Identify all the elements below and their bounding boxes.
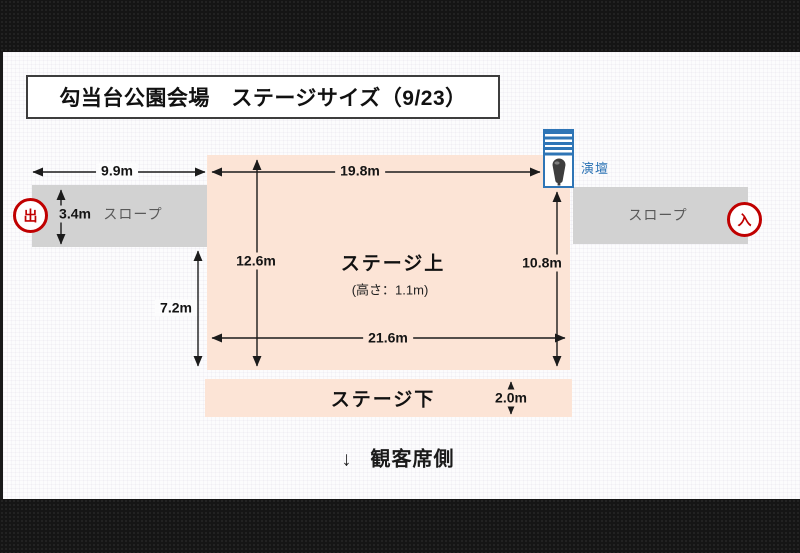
exit-badge: 出: [13, 198, 48, 233]
podium-top-stripes: [545, 131, 572, 156]
dim-label-lower-stage-depth: 2.0m: [490, 390, 532, 407]
slide: 勾当台公園会場 ステージサイズ（9/23） 9.9m 19.8m 12.6m 1…: [0, 0, 800, 553]
top-letterbox: [0, 0, 800, 52]
left-slope-label: スロープ: [103, 204, 162, 224]
dim-label-slope-width: 9.9m: [96, 163, 138, 180]
upper-stage-label: ステージ上: [341, 249, 446, 276]
dim-label-slope-height: 3.4m: [54, 206, 96, 223]
lower-stage-label: ステージ下: [331, 385, 436, 412]
dim-label-stage-right-height: 10.8m: [517, 255, 567, 272]
page-title: 勾当台公園会場 ステージサイズ（9/23）: [26, 75, 500, 119]
dim-label-stage-bottom-width: 21.6m: [363, 330, 413, 347]
stage-height-note: (高さ：1.1m): [352, 280, 429, 299]
entry-badge: 入: [727, 202, 762, 237]
bottom-letterbox: [0, 499, 800, 553]
microphone-icon: [545, 156, 572, 186]
audience-side-note: ↓観客席側: [342, 443, 455, 472]
dim-label-stage-left-height: 12.6m: [231, 253, 281, 270]
right-slope-label: スロープ: [628, 205, 687, 225]
down-arrow-icon: ↓: [342, 449, 353, 471]
dim-label-offstage-height: 7.2m: [155, 300, 197, 317]
podium-label: 演壇: [581, 158, 609, 177]
dim-label-stage-top-width: 19.8m: [335, 163, 385, 180]
audience-side-label: 観客席側: [371, 449, 455, 471]
podium-icon: [543, 129, 574, 188]
